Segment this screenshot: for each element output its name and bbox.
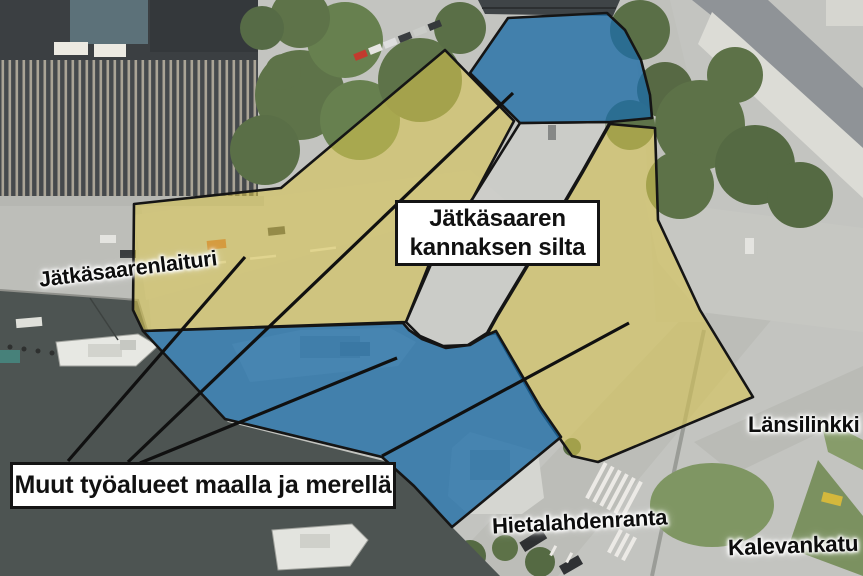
callout-bridge: Jätkäsaaren kannaksen silta [395,200,600,266]
callout-other-work-areas-text: Muut työalueet maalla ja merellä [14,471,391,500]
callout-bridge-line1: Jätkäsaaren [429,204,566,233]
callout-other-work-areas: Muut työalueet maalla ja merellä [10,462,396,509]
street-label-lansilinkki: Länsilinkki [748,412,860,438]
aerial-map: Jätkäsaaren kannaksen silta Muut työalue… [0,0,863,576]
callout-bridge-line2: kannaksen silta [410,233,586,262]
street-label-kalevankatu: Kalevankatu [728,531,859,562]
office-building [0,0,264,206]
